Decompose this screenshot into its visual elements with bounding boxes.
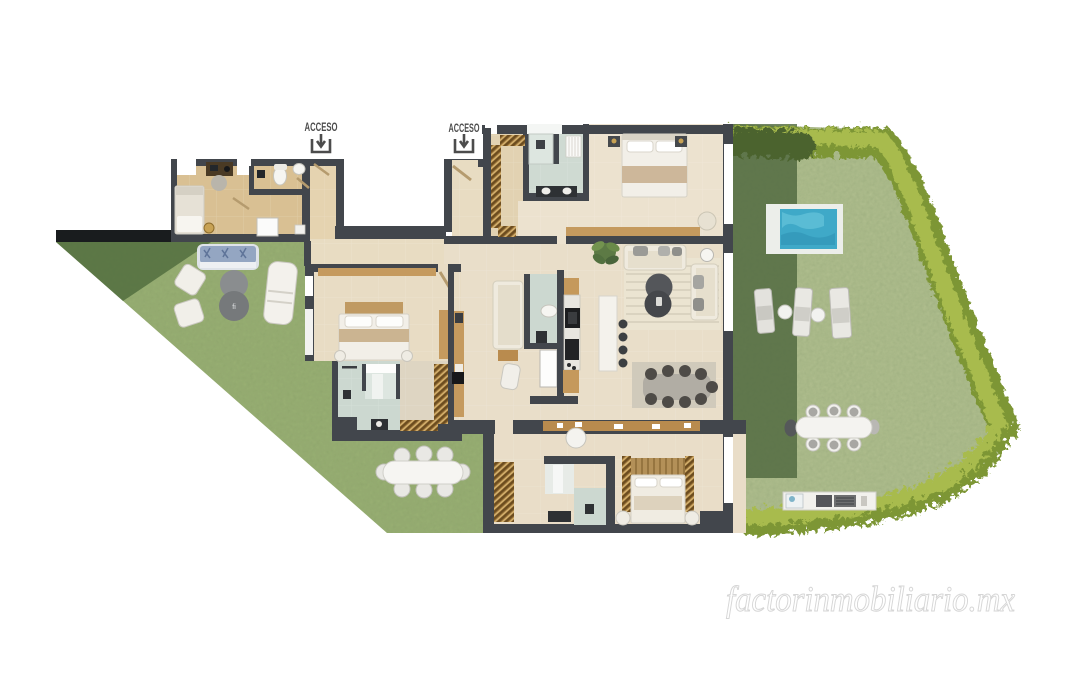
svg-text:fi: fi — [232, 304, 236, 311]
svg-text:factorinmobiliario.mx: factorinmobiliario.mx — [726, 579, 1015, 619]
svg-text:ACCESO: ACCESO — [449, 123, 480, 135]
svg-text:ACCESO: ACCESO — [305, 122, 338, 134]
